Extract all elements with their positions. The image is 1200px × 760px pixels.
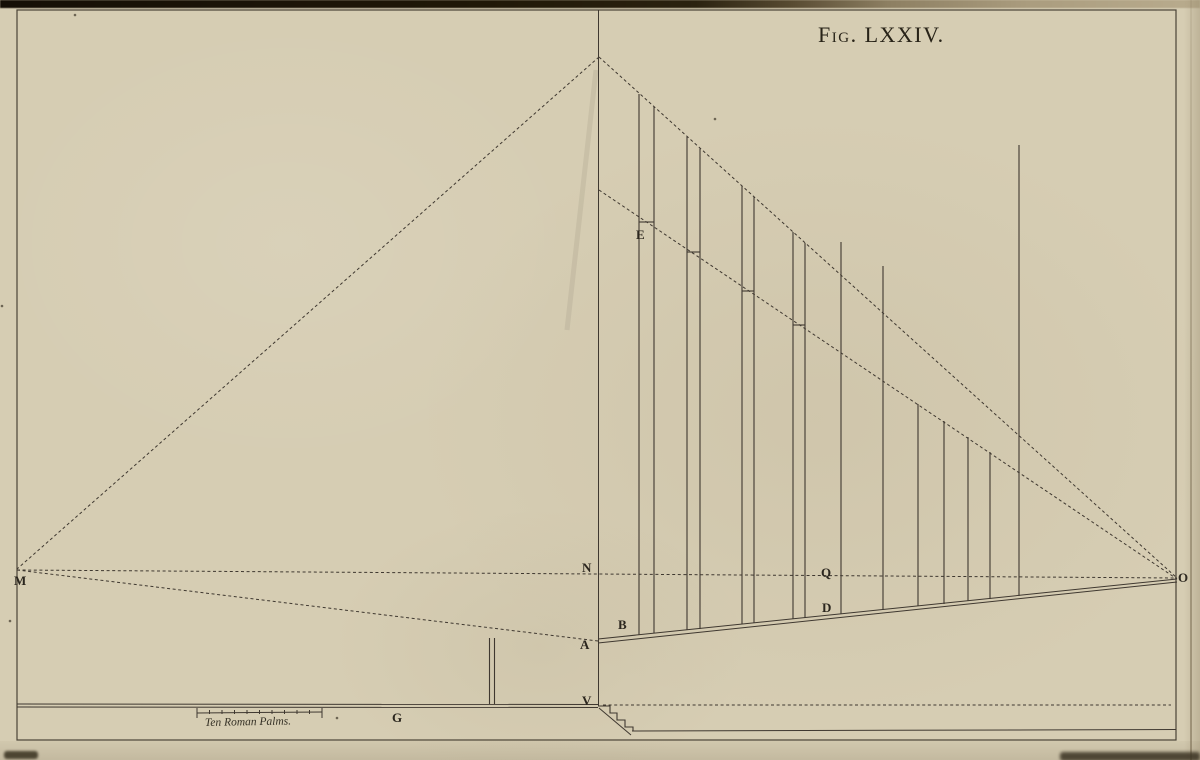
- page-right-edge-line: [1190, 0, 1192, 760]
- label-G: G: [392, 710, 402, 725]
- label-Q: Q: [821, 565, 831, 580]
- label-A: A: [580, 637, 590, 652]
- engraved-plate-page: Ten Roman Palms.MNQOEBDAVG Fig. LXXIV.: [0, 0, 1200, 760]
- dashed-line-horizon-M-N-Q-O: [17, 570, 1177, 578]
- page-bottom-margin: [0, 741, 1200, 760]
- dashed-line-e-line-to-O: [599, 190, 1177, 579]
- ink-speck-3: [336, 717, 339, 720]
- solid-line-base-rail-bottom: [598, 582, 1177, 643]
- label-V: V: [582, 693, 592, 708]
- label-M: M: [14, 573, 26, 588]
- dashed-line-M-to-A: [17, 570, 598, 641]
- dashed-line-apex-to-O: [599, 57, 1177, 578]
- label-B: B: [618, 617, 627, 632]
- label-E: E: [636, 227, 645, 242]
- plate-border: [17, 10, 1176, 740]
- page-top-edge-shadow: [0, 0, 1200, 8]
- dashed-line-apex-to-M: [17, 57, 599, 569]
- ink-speck-4: [74, 14, 77, 17]
- page-right-edge-shadow: [1184, 0, 1200, 760]
- ink-speck-1: [9, 620, 12, 623]
- figure-title: Fig. LXXIV.: [818, 22, 945, 48]
- scale-bar-label: Ten Roman Palms.: [205, 715, 291, 729]
- solid-line-base-rail-top: [598, 579, 1177, 639]
- label-D: D: [822, 600, 831, 615]
- staircase: [598, 706, 633, 731]
- solid-line-stair-diagonal: [599, 708, 631, 735]
- diagram-canvas: Ten Roman Palms.MNQOEBDAVG: [0, 0, 1200, 760]
- ink-speck-5: [714, 118, 717, 121]
- ink-smudge-bottom-right: [1060, 752, 1200, 760]
- ink-speck-2: [1, 305, 4, 308]
- solid-line-ground-right-lower: [632, 730, 1176, 732]
- printing-artifact-streak: [567, 70, 596, 330]
- solid-line-ground-left-bottom: [17, 707, 598, 708]
- label-N: N: [582, 560, 592, 575]
- ink-smudge-bottom-left: [4, 751, 38, 759]
- solid-line-ground-left-top: [17, 704, 598, 705]
